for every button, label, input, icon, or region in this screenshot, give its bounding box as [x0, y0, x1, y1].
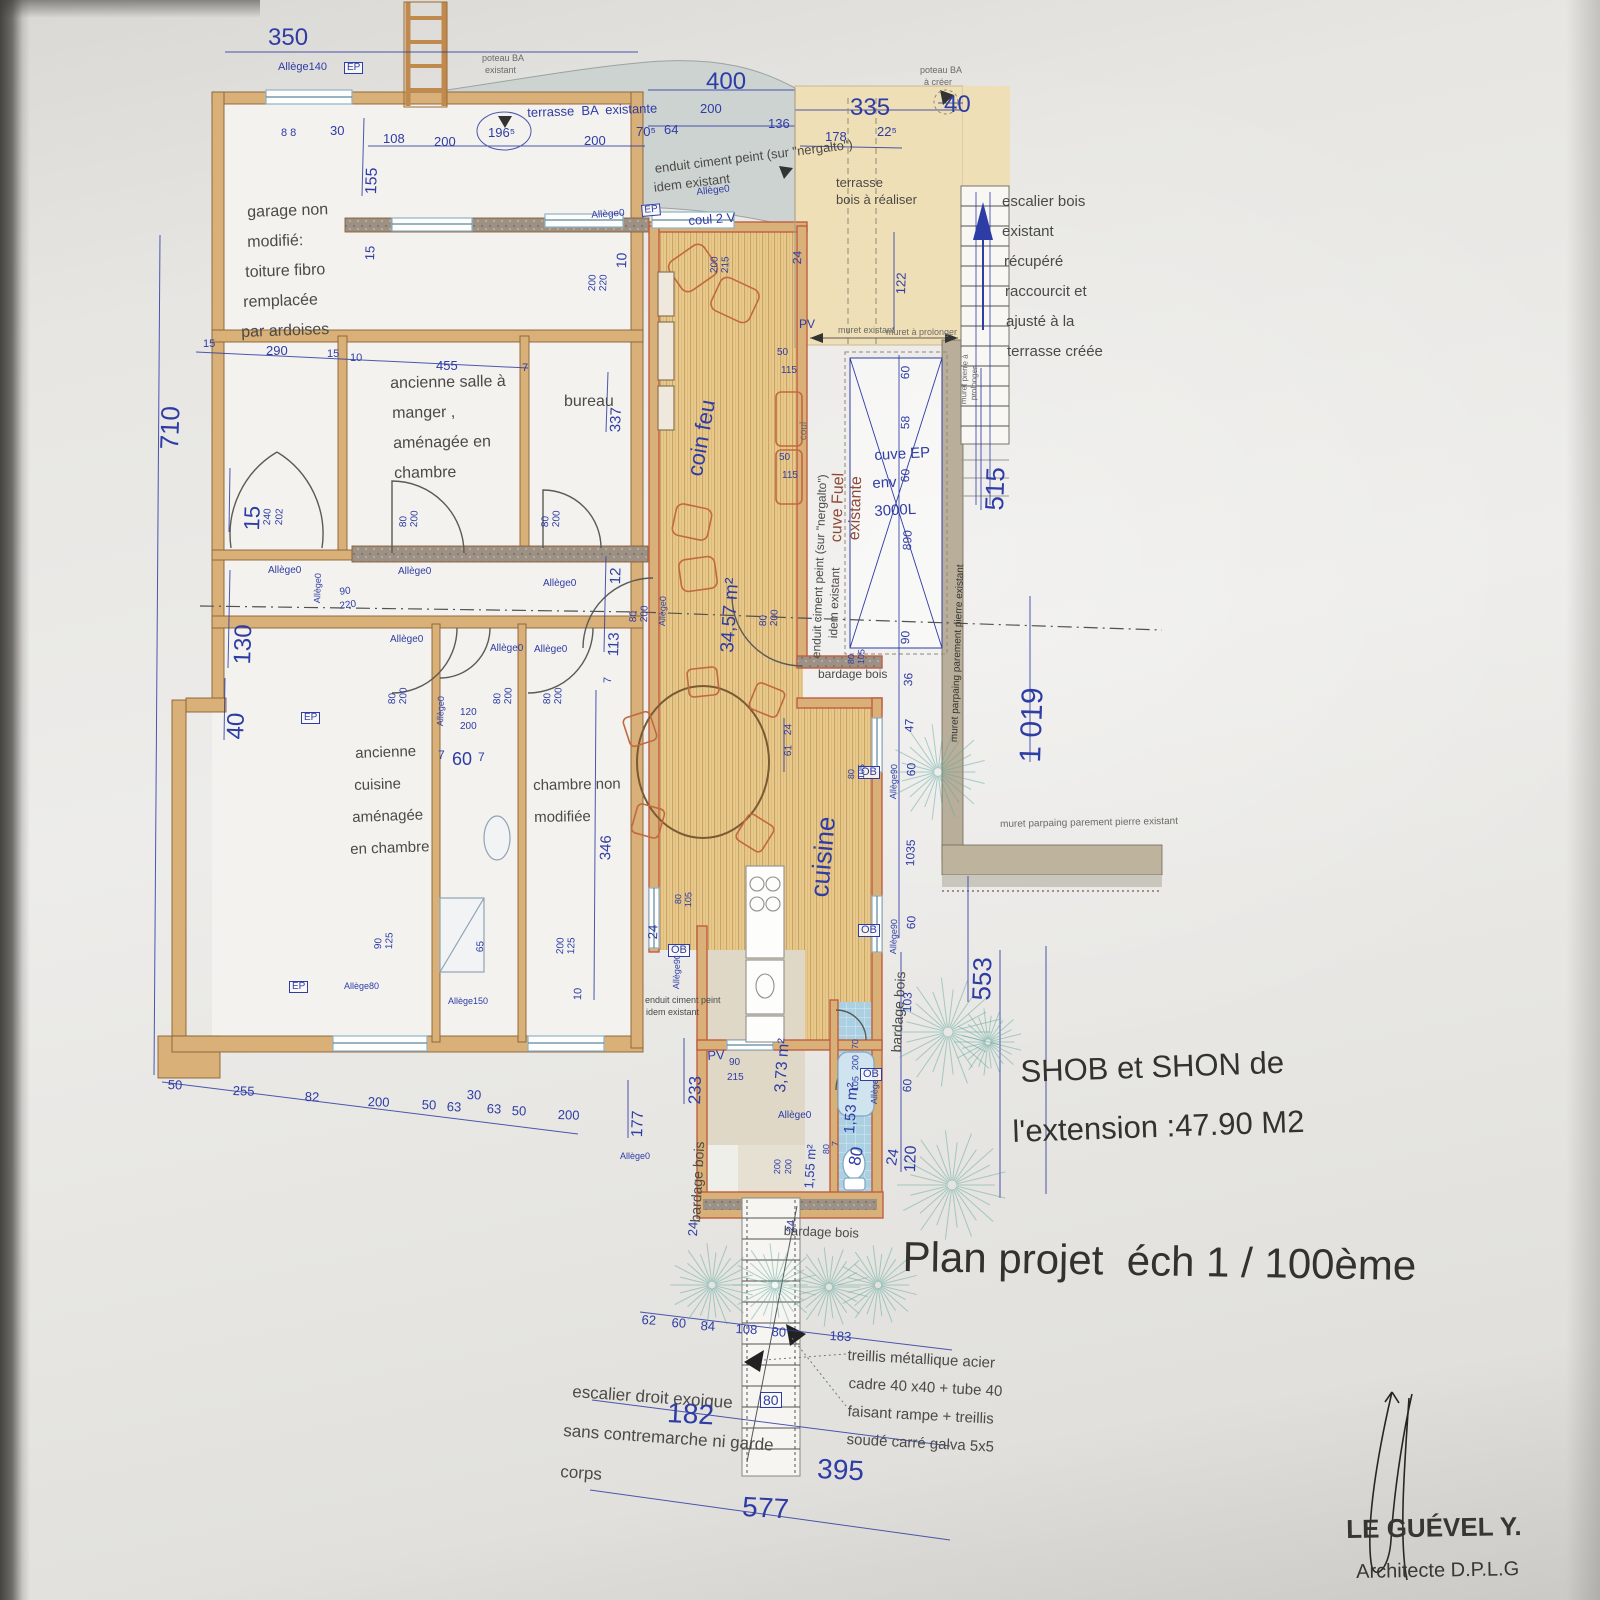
bardage-v-2: bardage bois: [688, 1141, 706, 1223]
d-220a: 220: [339, 600, 357, 612]
d-350: 350: [268, 26, 308, 50]
d-60r1: 60: [899, 366, 911, 380]
d-62s: 62: [641, 1313, 656, 1327]
chambre-non-2: modifiée: [534, 809, 591, 825]
treillis-2: cadre 40 x40 + tube 40: [848, 1376, 1002, 1399]
ep-4: EP: [289, 981, 308, 993]
allege0-07: Allège0: [390, 635, 423, 645]
garage-note-3: toiture fibro: [245, 262, 326, 281]
salle-note-2: manger ,: [392, 405, 455, 422]
d-40t: 40: [944, 93, 971, 117]
terrasse-ba: terrasse BA existante: [527, 101, 657, 119]
d-215pv: 215: [727, 1073, 744, 1083]
d-177: 177: [630, 1110, 647, 1137]
d-337: 337: [608, 407, 624, 433]
d-90a: 90: [339, 586, 351, 597]
ep-1: EP: [344, 62, 363, 74]
allege0-06: Allège0: [543, 579, 576, 589]
poteau-creer-1: poteau BA: [920, 66, 962, 75]
d-24bath: 24: [884, 1148, 902, 1167]
allege90-4: Allège90: [672, 954, 682, 989]
d-125w2: 125: [567, 937, 578, 954]
d-80bath: 80: [846, 1145, 866, 1167]
d-60r2: 60: [899, 469, 911, 483]
pv-1: PV: [707, 1048, 725, 1062]
d-120r: 120: [903, 1145, 920, 1172]
d-10a: 10: [350, 353, 362, 364]
cuve-ep-2: env: [872, 475, 897, 491]
d-10b: 10: [573, 988, 584, 1001]
garage-note-2: modifié:: [247, 233, 304, 251]
d-553: 553: [968, 957, 995, 1001]
cuisine-anc-3: aménagée: [352, 808, 423, 825]
d-455: 455: [436, 359, 458, 372]
esc-bois-2: existant: [1002, 224, 1054, 239]
treillis-4: soudé carré galva 5x5: [846, 1432, 994, 1455]
ob-1: OB: [668, 944, 690, 957]
ep-2: EP: [641, 203, 661, 217]
esc-bois-5: ajusté à la: [1006, 314, 1074, 329]
allege0-13: Allège0: [620, 1152, 650, 1161]
allege0-11: Allège0: [658, 596, 668, 626]
d-24t: 24: [791, 251, 803, 265]
d-113: 113: [606, 632, 622, 656]
d-30: 30: [330, 124, 344, 137]
d-255: 255: [233, 1084, 255, 1098]
d-200z2: 200: [784, 1159, 794, 1174]
d-60r4: 60: [905, 916, 917, 930]
d-115f1: 115: [781, 366, 797, 376]
allege90-2: Allège90: [889, 919, 899, 954]
photo-right-edge: [1566, 0, 1600, 1600]
d-200b: 200: [584, 134, 606, 147]
d-105w1: 105: [684, 892, 694, 907]
treillis-3: faisant rampe + treillis: [847, 1404, 994, 1427]
area-cellier: 1,55 m²: [802, 1144, 818, 1189]
d-50c1: 50: [168, 1078, 183, 1091]
d-200m: 200: [460, 722, 477, 732]
d-7a: 7: [522, 363, 528, 374]
d-400: 400: [706, 70, 746, 94]
surface-note-line1: SHOB et SHON de: [1020, 1047, 1285, 1087]
muret-pierre-2: prolonger: [970, 366, 979, 400]
d-103: 103: [901, 992, 914, 1012]
treillis-1: treillis métallique acier: [847, 1348, 995, 1371]
d-65: 65: [476, 941, 486, 952]
d-60m: 60: [452, 750, 472, 768]
photographed-blueprint: Plan projet éch 1 / 100èmeSHOB et SHON d…: [0, 0, 1600, 1600]
d-335: 335: [850, 96, 890, 120]
d-200p5: 200: [554, 687, 565, 704]
bardage-h-1: bardage bois: [818, 668, 887, 680]
pv-2: PV: [799, 318, 815, 330]
ob-3: OB: [858, 924, 880, 937]
d-200p1: 200: [410, 510, 421, 527]
ep-3: EP: [301, 712, 320, 724]
d-36r: 36: [902, 673, 914, 687]
allege0-05: Allège0: [398, 567, 431, 577]
enduit-small-2: idem existant: [646, 1008, 699, 1017]
cuve-fuel-1: cuve Fuel: [829, 473, 847, 543]
d-63c1: 63: [447, 1100, 462, 1113]
muret-parpaing-v: muret parpaing parement pierre existant: [950, 564, 966, 742]
esc-bois-4: raccourcit et: [1005, 284, 1087, 299]
ob-4: OB: [860, 1068, 882, 1081]
photo-left-edge: [0, 0, 30, 1600]
d-200p4: 200: [504, 687, 515, 704]
d-577: 577: [742, 1493, 790, 1523]
d-515: 515: [981, 467, 1008, 511]
allege0-12: Allège0: [778, 1111, 811, 1121]
d-7z: 7: [831, 1141, 840, 1146]
coin-feu-label: coin feu: [684, 398, 719, 478]
d-115f2: 115: [782, 471, 798, 481]
d-24b1: 24: [686, 1222, 699, 1237]
d-200u: 200: [588, 274, 599, 291]
chambre-non-1: chambre non: [533, 776, 621, 793]
d-15a: 15: [203, 339, 215, 350]
d-15b: 15: [327, 349, 339, 360]
d-183s: 183: [829, 1329, 851, 1343]
esc-bois-6: terrasse créée: [1007, 344, 1103, 359]
d-200p7: 200: [770, 609, 781, 626]
d-200d: 200: [368, 1095, 390, 1109]
d-233: 233: [686, 1076, 704, 1105]
d-1035: 1035: [904, 839, 917, 866]
d-220u: 220: [599, 274, 610, 291]
allege0-03: Allège0: [268, 566, 301, 576]
d-90pv: 90: [729, 1058, 740, 1068]
d-108s: 108: [735, 1322, 757, 1336]
d-200p6: 200: [640, 605, 651, 622]
garage-note-5: par ardoises: [241, 322, 330, 341]
garage-note-1: garage non: [247, 202, 328, 221]
photo-top-edge: [0, 0, 260, 18]
allege0-09: Allège0: [534, 645, 567, 655]
coul-2v: coul 2 V: [688, 211, 736, 227]
esc-bois-1: escalier bois: [1002, 194, 1085, 209]
plan-labels-layer: Plan projet éch 1 / 100èmeSHOB et SHON d…: [0, 0, 1600, 1600]
d-12: 12: [608, 567, 624, 584]
d-47r: 47: [903, 719, 915, 733]
d-200e: 200: [558, 1108, 580, 1122]
cuve-ep-3: 3000L: [874, 502, 916, 519]
d-7m1: 7: [438, 749, 445, 761]
garage-note-4: remplacée: [243, 292, 318, 311]
d-63c2: 63: [487, 1102, 502, 1115]
muret-prolonger: muret à prolonger: [886, 328, 957, 337]
d-80p4: 80: [493, 693, 503, 704]
d-200z1: 200: [773, 1159, 783, 1174]
allege0-01: Allège0: [591, 209, 625, 221]
d-80p3: 80: [388, 693, 398, 704]
d-80p5: 80: [543, 693, 553, 704]
d-58r: 58: [899, 416, 911, 430]
d-80p6: 80: [629, 611, 639, 622]
d-108: 108: [383, 132, 405, 145]
d-50f2: 50: [779, 453, 790, 463]
salle-note-1: ancienne salle à: [390, 374, 506, 392]
d-70b: 70: [851, 1039, 860, 1049]
cuisine-anc-4: en chambre: [350, 839, 430, 857]
enduit-v-2: idem existant: [827, 567, 841, 638]
d-125w1: 125: [385, 932, 396, 949]
cuisine-label: cuisine: [806, 815, 839, 898]
d-24b2: 24: [786, 1220, 797, 1233]
d-60r5: 60: [901, 1079, 913, 1093]
terrasse-bois-1: terrasse: [836, 176, 883, 189]
d-215t: 215: [721, 256, 732, 273]
allege0-04: Allège0: [313, 573, 323, 603]
salle-note-4: chambre: [394, 465, 457, 482]
d-60r3: 60: [905, 763, 917, 777]
d-50c3: 50: [512, 1104, 527, 1117]
d-82: 82: [305, 1090, 320, 1103]
d-84s: 84: [700, 1319, 715, 1333]
poteau-exist-2: existant: [485, 66, 516, 75]
d-105w3: 105: [857, 764, 867, 779]
d-105w2: 105: [857, 649, 867, 664]
d-70: 70⁵: [636, 125, 656, 138]
d-200w: 200: [556, 937, 567, 954]
area-hall: 3,73 m²: [773, 1038, 793, 1093]
d-24w: 24: [646, 925, 659, 940]
cuisine-anc-2: cuisine: [354, 776, 401, 793]
d-80s: 80: [771, 1325, 786, 1339]
stair-80-box: 80: [760, 1392, 782, 1408]
d-225: 22⁵: [877, 125, 897, 138]
d-80p7: 80: [759, 615, 769, 626]
poteau-exist-1: poteau BA: [482, 54, 524, 63]
d-90r: 90: [899, 631, 911, 645]
d-202: 202: [275, 508, 286, 525]
d-155: 155: [364, 167, 381, 194]
d-8-8: 8 8: [281, 128, 296, 139]
plan-title: Plan projet éch 1 / 100ème: [902, 1236, 1416, 1287]
area-sejour: 34,57 m²: [718, 577, 742, 653]
allege80: Allège80: [344, 982, 379, 991]
d-15big: 15: [241, 506, 264, 531]
muret-parpaing-h: muret parpaing parement pierre existant: [1000, 817, 1178, 830]
d-200p3: 200: [399, 687, 410, 704]
d-24k: 24: [784, 724, 794, 735]
d-7b: 7: [603, 677, 614, 684]
cuve-ep-1: cuve EP: [874, 445, 931, 463]
d-60s: 60: [671, 1316, 686, 1330]
d-50f1: 50: [777, 348, 788, 358]
coul-small: coul: [799, 422, 810, 441]
d-890: 890: [901, 530, 914, 550]
d-200c: 200: [700, 102, 722, 115]
d-200p2: 200: [552, 510, 563, 527]
d-105b: 105: [851, 1076, 861, 1091]
bureau-label: bureau: [564, 394, 614, 410]
d-40l: 40: [224, 712, 249, 740]
allege0-10: Allège0: [436, 696, 446, 726]
architect-name: LE GUÉVEL Y.: [1346, 1513, 1522, 1542]
allege0-02: Allège0: [696, 185, 730, 198]
d-15v: 15: [363, 246, 376, 261]
d-64: 64: [664, 123, 678, 136]
cuisine-anc-1: ancienne: [355, 744, 416, 761]
d-136: 136: [768, 117, 790, 130]
esc-droit-3: corps: [560, 1463, 603, 1483]
surface-note-line2: l'extension :47.90 M2: [1012, 1106, 1305, 1147]
d-80p1: 80: [399, 516, 409, 527]
d-122: 122: [894, 272, 908, 294]
poteau-creer-2: à créer: [924, 78, 952, 87]
d-290: 290: [266, 344, 288, 357]
d-80p2: 80: [541, 516, 551, 527]
d-200t: 200: [710, 256, 721, 273]
d-710: 710: [156, 406, 183, 450]
d-61k: 61: [784, 745, 794, 756]
allege140: Allège140: [278, 62, 327, 73]
enduit-top-1: enduit ciment peint (sur "nergalto"): [654, 138, 853, 175]
d-200a: 200: [434, 135, 456, 148]
d-182: 182: [667, 1399, 715, 1429]
d-80w3: 80: [847, 769, 856, 779]
d-10t: 10: [614, 252, 629, 268]
allege150: Allège150: [448, 997, 488, 1006]
d-80w2: 80: [847, 654, 856, 664]
terrasse-bois-2: bois à réaliser: [836, 193, 917, 206]
enduit-small-1: enduit ciment peint: [645, 996, 721, 1005]
d-90w: 90: [374, 938, 384, 949]
d-240: 240: [263, 508, 274, 525]
salle-note-3: aménagée en: [393, 434, 491, 452]
d-178: 178: [825, 130, 847, 143]
d-196: 196⁵: [488, 126, 515, 139]
cuve-fuel-2: existante: [847, 476, 865, 541]
architect-title: Architecte D.P.L.G: [1356, 1559, 1519, 1582]
d-50c2: 50: [422, 1098, 437, 1111]
d-1019: 1 019: [1016, 687, 1049, 763]
d-80w1: 80: [674, 894, 683, 904]
d-7m2: 7: [478, 751, 485, 763]
allege0-08: Allège0: [490, 644, 523, 654]
d-130: 130: [231, 624, 256, 665]
d-395: 395: [817, 1455, 865, 1485]
allege90-1: Allège90: [889, 764, 899, 799]
d-346: 346: [598, 835, 614, 861]
d-200bt: 200: [851, 1055, 861, 1070]
d-30c: 30: [467, 1088, 482, 1101]
d-120m: 120: [460, 708, 477, 718]
esc-bois-3: récupéré: [1004, 254, 1063, 269]
